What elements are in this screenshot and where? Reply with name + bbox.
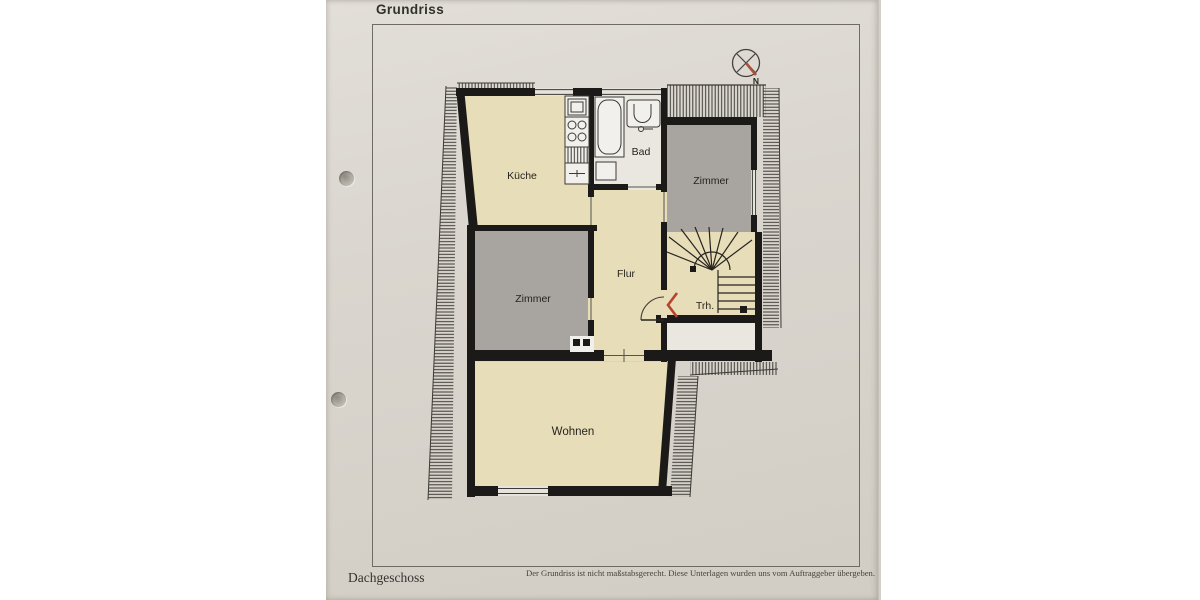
label-flur: Flur [617,268,636,280]
compass-north-label: N [753,76,759,86]
page-title: Grundriss [376,2,444,17]
room-zimmer-left [475,231,588,350]
label-bad: Bad [632,146,651,158]
label-trh: Trh. [696,300,714,312]
room-storage-strip [667,323,755,350]
paper-edge-shadow [878,0,881,600]
compass-icon: N [733,50,760,87]
roof-hatch-bottom-right [690,362,778,375]
washbasin [596,162,616,180]
floor-plan: Küche Bad Zimmer Flur Trh. Zimmer Wohnen… [372,24,859,565]
punch-hole [331,392,346,407]
label-wohnen: Wohnen [552,426,595,438]
roof-hatch-right [763,88,779,328]
compass-needle [746,63,756,75]
roof-hatch-left [428,86,457,500]
stair-post [690,266,696,272]
window [498,486,548,496]
entrance-door-opening [661,290,667,318]
stair-post [740,306,747,313]
roof-hatch-right-edge [779,88,781,328]
photo-of-floorplan-document: { "page": { "title": "Grundriss", "floor… [0,0,1200,600]
room-wohnen [475,362,670,486]
roof-hatch-top-right [667,85,766,117]
chimney [570,336,594,352]
stove [565,117,589,147]
label-zimmer-left: Zimmer [515,293,551,305]
kitchen-counter [565,96,589,184]
label-kueche: Küche [507,170,537,182]
punch-hole [339,171,354,186]
label-zimmer-top: Zimmer [693,175,729,187]
disclaimer-text: Der Grundriss ist nicht maßstabsgerecht.… [0,568,875,578]
kitchen-unit-hatched [565,147,589,163]
